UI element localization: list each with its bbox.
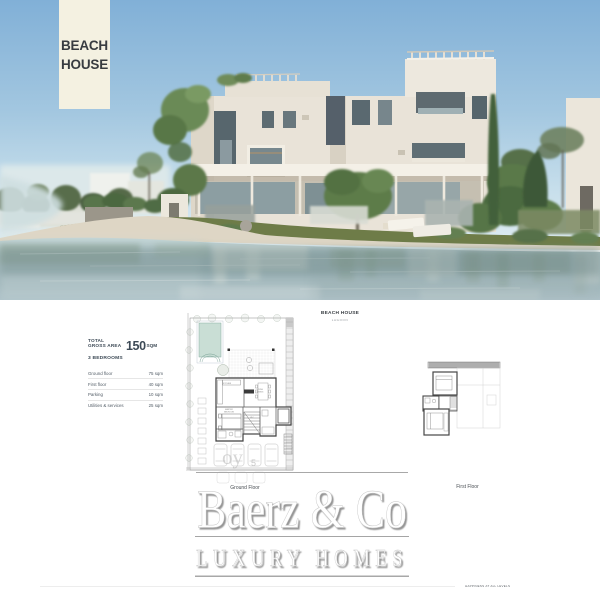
svg-text:BEDROOM: BEDROOM bbox=[224, 411, 234, 413]
svg-text:KITCHEN: KITCHEN bbox=[223, 383, 232, 385]
svg-text:DINING: DINING bbox=[257, 391, 264, 393]
svg-text:LUXURY HOMES: LUXURY HOMES bbox=[196, 546, 408, 572]
svg-text:Baerz & Co: Baerz & Co bbox=[197, 479, 407, 540]
